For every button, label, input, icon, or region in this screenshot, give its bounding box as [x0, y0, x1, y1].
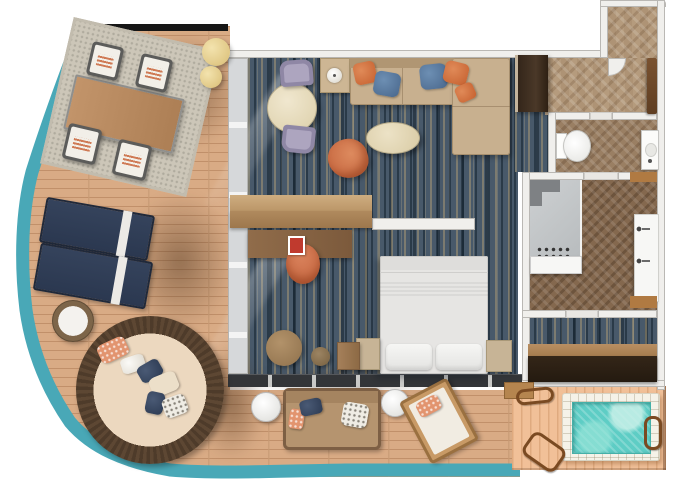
- lamp-side-table: [320, 58, 350, 93]
- chair-cushion: [115, 142, 149, 178]
- jacuzzi-water: [572, 402, 651, 454]
- sink-basin: [645, 143, 657, 157]
- entry-corridor-floor: [608, 5, 657, 58]
- wc-door: [590, 112, 612, 120]
- shower-wall: [530, 180, 542, 206]
- chair-cushion: [138, 56, 170, 89]
- round-pouf: [202, 38, 230, 66]
- chair-cushion-pattern: [96, 54, 115, 69]
- wc-sink: [641, 130, 659, 170]
- wood-bench: [630, 296, 657, 308]
- chair-cushion-pattern: [122, 152, 142, 168]
- dressing-room-shelf: [528, 344, 657, 356]
- throw-pillow: [372, 70, 402, 98]
- sliding-door-track: [228, 374, 522, 387]
- media-console-upper: [230, 195, 372, 212]
- towel: [110, 256, 127, 305]
- bedroom-pouf: [266, 330, 302, 366]
- bedroom-cabinet: [337, 342, 360, 370]
- chair-cushion: [65, 126, 99, 162]
- corridor-left-wall: [600, 0, 608, 58]
- towel: [116, 210, 133, 257]
- chair-cushion: [89, 44, 121, 77]
- cushion-seam: [452, 106, 510, 107]
- chair-seat: [283, 63, 309, 83]
- suite-floor-plan: [0, 0, 680, 486]
- wicker-side-table: [52, 300, 94, 342]
- sink-tap: [648, 159, 652, 163]
- bathroom-door: [584, 172, 618, 180]
- duvet-band: [380, 282, 488, 296]
- king-bed: [380, 256, 488, 374]
- dark-bench: [528, 356, 657, 382]
- vanity-faucet: [636, 226, 650, 232]
- nightstand: [486, 340, 512, 372]
- chair-cushion-pattern: [72, 136, 92, 152]
- lamp-finial: [333, 74, 336, 77]
- outdoor-pillow: [340, 401, 370, 429]
- bathroom-top-wall: [522, 172, 584, 180]
- grab-rail: [644, 416, 662, 450]
- wardrobe: [515, 55, 548, 112]
- lavender-chair: [281, 124, 317, 154]
- media-console-lower: [230, 211, 372, 228]
- bathroom-bottom-wall: [598, 310, 657, 318]
- bed-pillow: [436, 344, 482, 370]
- entry-door: [647, 58, 657, 114]
- oval-coffee-table: [366, 122, 420, 154]
- living-room-top-wall: [228, 50, 608, 58]
- bed-pillow: [386, 344, 432, 370]
- shower-fixtures: [536, 246, 572, 256]
- white-side-table: [251, 392, 281, 422]
- chair-cushion-pattern: [145, 66, 164, 81]
- vanity-faucet: [636, 258, 650, 264]
- magazine-cover: [290, 238, 303, 253]
- bathroom-bottom-wall: [522, 310, 566, 318]
- magazine: [288, 236, 305, 255]
- dressing-room-door: [566, 310, 598, 318]
- entry-hall-floor: [545, 55, 657, 115]
- round-pouf: [200, 66, 222, 88]
- round-daybed: [76, 316, 224, 464]
- duvet-fold: [380, 272, 488, 273]
- suite-right-wall: [657, 0, 665, 390]
- wood-bench: [630, 172, 657, 182]
- toilet-bowl: [563, 130, 591, 162]
- chair-seat: [285, 129, 312, 151]
- lavender-chair: [279, 59, 314, 87]
- shower-shelf: [530, 256, 582, 274]
- bedroom-stool: [311, 347, 330, 366]
- outdoor-pillow: [299, 397, 324, 417]
- bedroom-divider-wall: [372, 218, 475, 230]
- wc-left-wall: [548, 112, 556, 180]
- outdoor-sofa: [283, 388, 381, 450]
